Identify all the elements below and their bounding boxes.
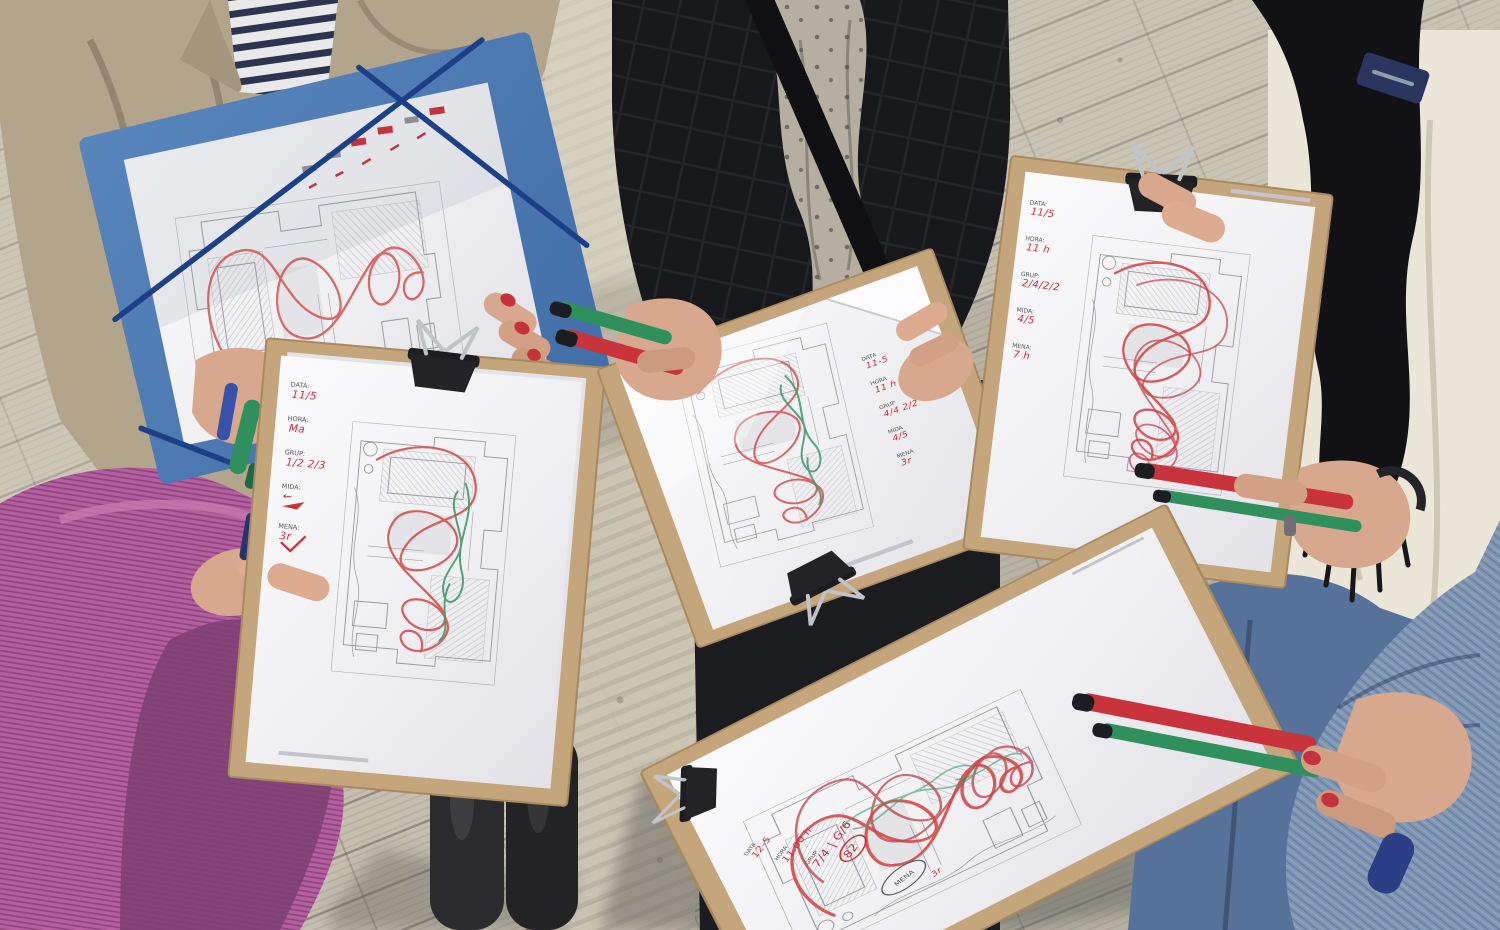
photo-street-mapping-session: DATA:11/5 HORA:Ma GRUP:1/2 2/3 MIDA:← ME…	[0, 0, 1500, 930]
svg-text:MIDA:4/5: MIDA:4/5	[1015, 307, 1036, 327]
ring	[1284, 516, 1296, 536]
svg-text:MENA:7 h: MENA:7 h	[1010, 342, 1032, 362]
clipboard-left: DATA:11/5 HORA:Ma GRUP:1/2 2/3 MIDA:← ME…	[228, 307, 608, 806]
